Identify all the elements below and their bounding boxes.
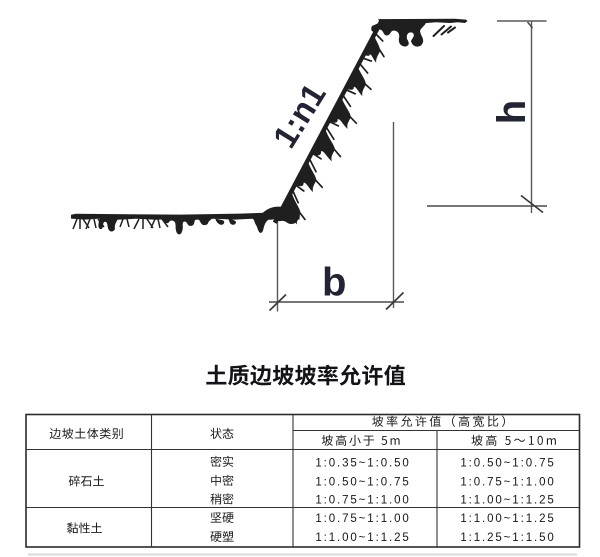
svg-text:1:0.75~1:1.00: 1:0.75~1:1.00 [315, 513, 410, 525]
svg-text:1:0.35~1:0.50: 1:0.35~1:0.50 [315, 458, 410, 470]
svg-text:1:1.25~1:1.50: 1:1.25~1:1.50 [460, 532, 555, 544]
svg-text:1:1.00~1:1.25: 1:1.00~1:1.25 [460, 513, 555, 525]
svg-text:1:1.00~1:1.25: 1:1.00~1:1.25 [460, 495, 555, 507]
svg-text:1:0.50~1:0.75: 1:0.50~1:0.75 [460, 458, 555, 470]
svg-text:1:0.75~1:1.00: 1:0.75~1:1.00 [315, 495, 410, 507]
svg-text:1:0.50~1:0.75: 1:0.50~1:0.75 [315, 477, 410, 489]
svg-text:b: b [322, 261, 346, 305]
svg-text:1:1.00~1:1.25: 1:1.00~1:1.25 [315, 532, 410, 544]
svg-text:h: h [490, 100, 534, 124]
svg-text:1:0.75~1:1.00: 1:0.75~1:1.00 [460, 477, 555, 489]
